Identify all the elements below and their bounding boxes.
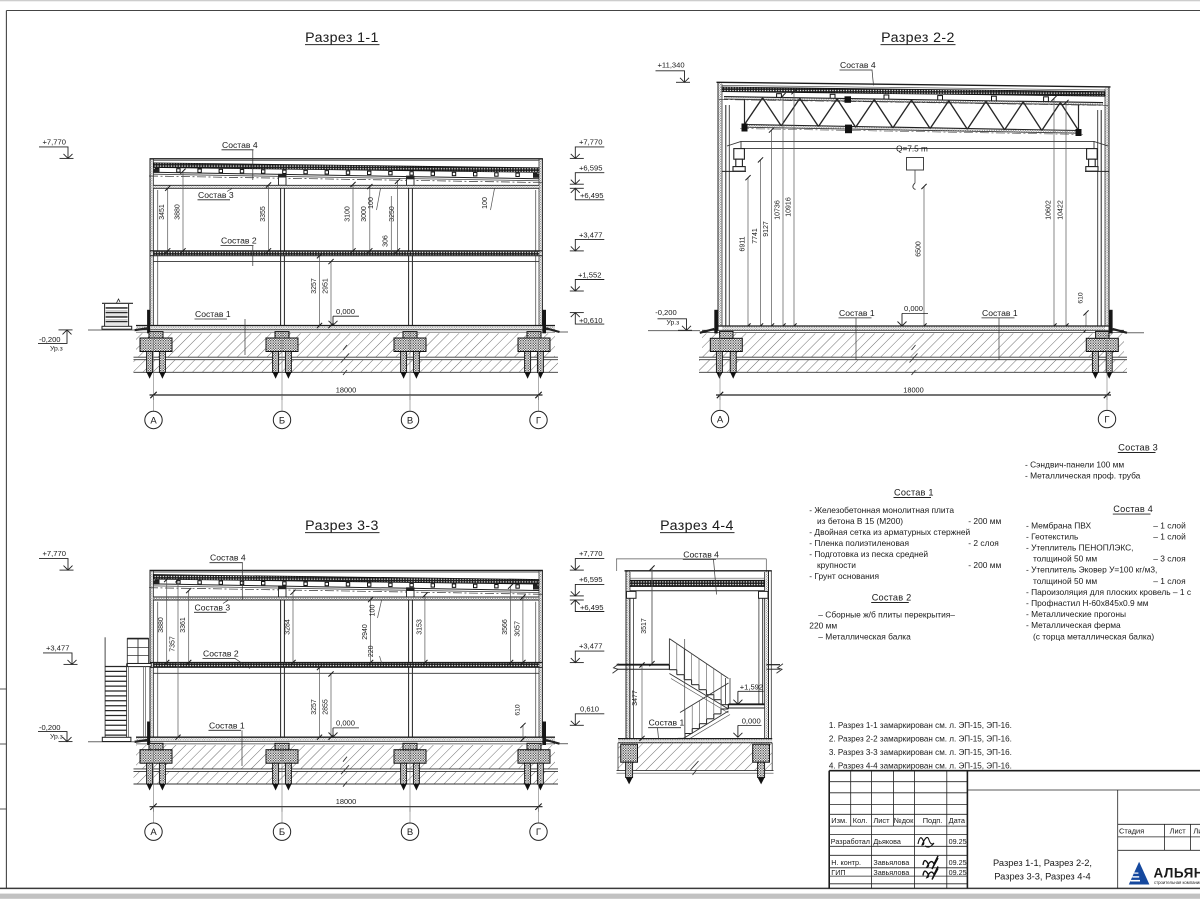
- svg-text:3880: 3880: [174, 204, 181, 220]
- svg-text:Состав 1: Состав 1: [894, 487, 934, 497]
- svg-text:3451: 3451: [159, 204, 166, 220]
- svg-text:10916: 10916: [785, 197, 792, 217]
- svg-text:Б: Б: [279, 827, 285, 838]
- svg-text:+6,495: +6,495: [580, 191, 603, 200]
- svg-text:18000: 18000: [336, 386, 357, 395]
- svg-text:Дата: Дата: [949, 816, 966, 825]
- svg-text:А: А: [150, 415, 157, 426]
- svg-text:Подп.: Подп.: [923, 816, 943, 825]
- svg-text:+1,552: +1,552: [578, 270, 601, 279]
- svg-text:Лист: Лист: [1170, 827, 1187, 836]
- svg-text:Кол.: Кол.: [853, 816, 868, 825]
- svg-text:- Грунт основания: - Грунт основания: [809, 571, 879, 581]
- svg-text:4. Разрез 4-4 замаркирован см.: 4. Разрез 4-4 замаркирован см. л. ЭП-15,…: [829, 762, 1012, 771]
- svg-text:3257: 3257: [311, 278, 318, 294]
- svg-text:Состав 3: Состав 3: [1118, 442, 1158, 452]
- svg-text:2940: 2940: [362, 624, 369, 640]
- svg-text:3057: 3057: [514, 621, 521, 637]
- svg-text:2855: 2855: [322, 699, 329, 715]
- svg-text:А: А: [717, 415, 724, 426]
- svg-text:3100: 3100: [344, 206, 351, 222]
- svg-text:Состав 1: Состав 1: [649, 718, 685, 728]
- svg-text:Состав 4: Состав 4: [210, 553, 246, 563]
- svg-text:Состав 2: Состав 2: [221, 236, 257, 246]
- svg-text:Ур.з: Ур.з: [50, 346, 63, 353]
- svg-text:- Металлические прогоны: - Металлические прогоны: [1026, 609, 1126, 619]
- svg-text:Н. контр.: Н. контр.: [831, 858, 861, 867]
- svg-text:0,000: 0,000: [336, 307, 355, 316]
- svg-text:Б: Б: [279, 415, 285, 426]
- svg-text:Состав 1: Состав 1: [839, 308, 875, 318]
- svg-text:+7,770: +7,770: [579, 549, 602, 558]
- svg-text:+7,770: +7,770: [43, 138, 66, 147]
- svg-text:АЛЬЯНС: АЛЬЯНС: [1154, 866, 1200, 881]
- svg-text:6500: 6500: [915, 241, 922, 257]
- svg-text:Стадия: Стадия: [1119, 827, 1144, 836]
- svg-text:Состав 1: Состав 1: [195, 309, 231, 319]
- svg-text:-0,200: -0,200: [39, 723, 61, 732]
- svg-text:– 1 слоя: – 1 слоя: [1153, 576, 1185, 586]
- svg-text:(с торца металлическая балка): (с торца металлическая балка): [1033, 631, 1154, 641]
- svg-text:– 1 слой: – 1 слой: [1153, 531, 1186, 541]
- svg-text:ГИП: ГИП: [831, 868, 845, 877]
- svg-text:– 3 слоя: – 3 слоя: [1153, 554, 1185, 564]
- svg-text:100: 100: [482, 197, 489, 209]
- svg-text:Разрез 3-3: Разрез 3-3: [305, 518, 379, 534]
- svg-text:- Металлическая проф. труба: - Металлическая проф. труба: [1025, 470, 1141, 480]
- svg-text:2951: 2951: [322, 278, 329, 294]
- svg-text:+6,595: +6,595: [579, 575, 602, 584]
- svg-text:Состав 2: Состав 2: [203, 649, 239, 659]
- svg-text:строительная компания: строительная компания: [1154, 880, 1200, 885]
- svg-text:+7,770: +7,770: [43, 549, 66, 558]
- svg-text:- Подготовка из песка средней: - Подготовка из песка средней: [809, 549, 928, 559]
- svg-text:толщиной 50 мм: толщиной 50 мм: [1033, 554, 1097, 564]
- svg-text:3361: 3361: [180, 617, 187, 633]
- svg-text:+6,495: +6,495: [580, 603, 603, 612]
- svg-text:Ур.з: Ур.з: [667, 319, 680, 326]
- svg-text:Г: Г: [536, 827, 541, 838]
- svg-text:из бетона В 15 (М200): из бетона В 15 (М200): [817, 516, 903, 526]
- svg-text:10736: 10736: [774, 200, 781, 220]
- svg-text:Q=7.5 m: Q=7.5 m: [896, 145, 928, 154]
- svg-text:3153: 3153: [416, 619, 423, 635]
- svg-text:6911: 6911: [739, 236, 746, 251]
- svg-text:- Утеплитель Эковер У=100 кг/м: - Утеплитель Эковер У=100 кг/м3,: [1026, 565, 1157, 575]
- svg-text:Состав 1: Состав 1: [982, 308, 1018, 318]
- svg-text:- 200 мм: - 200 мм: [968, 516, 1001, 526]
- svg-text:Завьялова: Завьялова: [873, 858, 909, 867]
- svg-text:Разрез 1-1: Разрез 1-1: [305, 30, 379, 46]
- svg-text:Состав 4: Состав 4: [683, 549, 719, 559]
- svg-text:Разрез 3-3, Разрез 4-4: Разрез 3-3, Разрез 4-4: [994, 871, 1090, 881]
- svg-text:0,000: 0,000: [904, 304, 923, 313]
- svg-text:Разрез 2-2: Разрез 2-2: [881, 30, 955, 46]
- svg-text:- Железобетонная монолитная п: - Железобетонная монолитная плита: [809, 505, 954, 515]
- svg-text:3250: 3250: [389, 206, 396, 222]
- svg-text:3284: 3284: [284, 619, 291, 635]
- svg-text:А: А: [150, 827, 157, 838]
- svg-text:Состав 3: Состав 3: [195, 602, 231, 612]
- svg-text:№док: №док: [894, 816, 914, 825]
- svg-text:1. Разрез 1-1 замаркирован см.: 1. Разрез 1-1 замаркирован см. л. ЭП-15,…: [829, 721, 1012, 730]
- svg-text:- Профнастил Н-60х845х0.9 мм: - Профнастил Н-60х845х0.9 мм: [1026, 598, 1149, 608]
- svg-text:– Сборные ж/б плиты перекрытия: – Сборные ж/б плиты перекрытия–: [818, 610, 955, 620]
- svg-text:0,610: 0,610: [580, 704, 599, 713]
- svg-text:Разрез 4-4: Разрез 4-4: [660, 518, 734, 534]
- svg-text:18000: 18000: [336, 797, 357, 806]
- svg-text:7741: 7741: [752, 228, 759, 244]
- svg-text:Г: Г: [536, 415, 541, 426]
- svg-text:9127: 9127: [763, 221, 770, 237]
- svg-text:+1,592: +1,592: [740, 682, 763, 691]
- svg-text:3566: 3566: [502, 619, 509, 635]
- svg-text:Разрез 1-1, Разрез 2-2,: Разрез 1-1, Разрез 2-2,: [993, 858, 1092, 868]
- svg-text:09.25: 09.25: [949, 868, 967, 877]
- svg-text:+3,477: +3,477: [579, 642, 602, 651]
- svg-text:0,000: 0,000: [742, 716, 761, 725]
- svg-text:220: 220: [368, 645, 375, 657]
- svg-text:- Пароизоляция для плоских кро: - Пароизоляция для плоских кровель – 1 с: [1026, 587, 1191, 597]
- svg-text:-0,200: -0,200: [39, 335, 61, 344]
- svg-text:Дьякова: Дьякова: [873, 837, 900, 846]
- svg-text:Завьялова: Завьялова: [873, 868, 909, 877]
- svg-text:В: В: [407, 827, 413, 838]
- svg-text:+7,770: +7,770: [579, 138, 602, 147]
- svg-text:100: 100: [370, 605, 377, 617]
- svg-text:Состав 3: Состав 3: [198, 190, 234, 200]
- svg-text:Состав 4: Состав 4: [840, 60, 876, 70]
- svg-text:+3,477: +3,477: [46, 644, 69, 653]
- svg-text:+3,477: +3,477: [579, 230, 602, 239]
- svg-text:толщиной 50 мм: толщиной 50 мм: [1033, 576, 1097, 586]
- svg-text:610: 610: [514, 704, 521, 716]
- svg-text:Ур.з: Ур.з: [50, 733, 63, 740]
- svg-text:+0,610: +0,610: [579, 316, 602, 325]
- svg-text:– Металлическая балка: – Металлическая балка: [818, 632, 911, 642]
- svg-text:220 мм: 220 мм: [809, 621, 837, 631]
- svg-text:0,000: 0,000: [336, 719, 355, 728]
- svg-text:3. Разрез 3-3 замаркирован см.: 3. Разрез 3-3 замаркирован см. л. ЭП-15,…: [829, 748, 1012, 757]
- svg-text:Г: Г: [1104, 415, 1109, 426]
- svg-text:7357: 7357: [169, 636, 176, 652]
- svg-text:- 2 слоя: - 2 слоя: [968, 538, 998, 548]
- svg-text:- Геотекстиль: - Геотекстиль: [1026, 531, 1079, 541]
- svg-text:2. Разрез 2-2 замаркирован см.: 2. Разрез 2-2 замаркирован см. л. ЭП-15,…: [829, 735, 1012, 744]
- svg-text:– 1 слой: – 1 слой: [1153, 520, 1186, 530]
- svg-text:- Двойная сетка из арматурных: - Двойная сетка из арматурных стержней: [809, 527, 970, 537]
- svg-text:Состав 1: Состав 1: [209, 720, 245, 730]
- svg-text:3355: 3355: [260, 206, 267, 222]
- svg-text:3880: 3880: [158, 617, 165, 633]
- svg-text:09.25: 09.25: [949, 858, 967, 867]
- svg-text:Изм.: Изм.: [831, 816, 847, 825]
- svg-text:В: В: [407, 415, 413, 426]
- svg-text:3477: 3477: [632, 690, 639, 706]
- svg-text:10422: 10422: [1057, 200, 1064, 220]
- svg-text:Состав 4: Состав 4: [1113, 504, 1153, 514]
- svg-text:+6,595: +6,595: [579, 163, 602, 172]
- svg-text:- Пленка полиэтиленовая: - Пленка полиэтиленовая: [809, 538, 909, 548]
- svg-text:крупности: крупности: [817, 560, 856, 570]
- svg-text:3517: 3517: [641, 618, 648, 634]
- svg-text:18000: 18000: [903, 386, 924, 395]
- svg-text:- 200 мм: - 200 мм: [968, 560, 1001, 570]
- svg-text:610: 610: [1077, 292, 1084, 304]
- svg-text:+11,340: +11,340: [658, 61, 685, 70]
- svg-text:09.25: 09.25: [949, 837, 967, 846]
- svg-text:10602: 10602: [1045, 200, 1052, 220]
- svg-text:- Мембрана ПВХ: - Мембрана ПВХ: [1026, 520, 1091, 530]
- svg-text:Разработал: Разработал: [831, 837, 870, 846]
- svg-text:306: 306: [383, 235, 390, 247]
- svg-text:100: 100: [368, 197, 375, 209]
- svg-text:-0,200: -0,200: [655, 308, 677, 317]
- svg-text:- Металлическая ферма: - Металлическая ферма: [1026, 620, 1121, 630]
- svg-text:Лис: Лис: [1193, 827, 1200, 836]
- svg-text:- Сэндвич-панели 100 мм: - Сэндвич-панели 100 мм: [1025, 459, 1124, 469]
- svg-text:- Утеплитель ПЕНОПЛЭКС,: - Утеплитель ПЕНОПЛЭКС,: [1026, 543, 1134, 553]
- svg-text:Состав 4: Состав 4: [222, 140, 258, 150]
- svg-text:Состав 2: Состав 2: [872, 592, 912, 602]
- svg-text:Лист: Лист: [873, 816, 890, 825]
- svg-text:3257: 3257: [311, 699, 318, 715]
